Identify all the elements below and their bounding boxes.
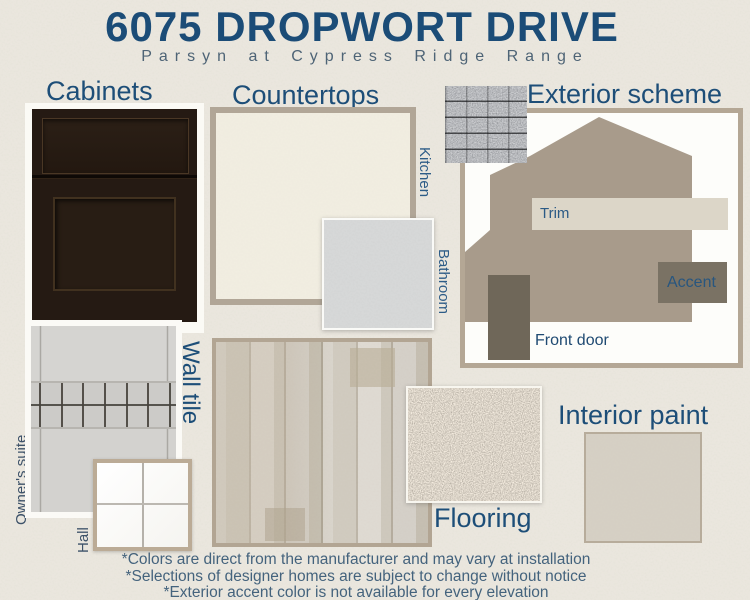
accent-label: Accent	[667, 274, 716, 292]
cabinet-drawer-front	[42, 118, 189, 174]
hall-tile-swatch	[93, 459, 192, 551]
flooring-panel	[212, 338, 432, 547]
design-board: 6075 DROPWORT DRIVE Parsyn at Cypress Ri…	[0, 0, 750, 600]
accent-swatch: Accent	[658, 262, 727, 303]
front-door-swatch	[488, 275, 530, 360]
bathroom-label: Bathroom	[435, 249, 452, 314]
flooring-heading: Flooring	[434, 503, 532, 534]
texture-overlay	[586, 434, 700, 541]
trim-band: Trim	[532, 198, 728, 230]
exterior-heading: Exterior scheme	[527, 79, 722, 110]
footnote-line: *Exterior accent color is not available …	[0, 585, 712, 600]
texture-overlay	[324, 220, 432, 328]
page-subtitle: Parsyn at Cypress Ridge Range	[0, 48, 730, 66]
footnote-line: *Colors are direct from the manufacturer…	[0, 552, 712, 569]
page-title: 6075 DROPWORT DRIVE	[0, 3, 724, 51]
kitchen-label: Kitchen	[416, 147, 433, 197]
footnotes: *Colors are direct from the manufacturer…	[0, 552, 712, 600]
tile-grout	[97, 503, 188, 505]
wood-plank-patch	[265, 508, 305, 541]
footnote-line: *Selections of designer homes are subjec…	[0, 569, 712, 586]
texture-overlay	[408, 388, 540, 501]
interior-paint-swatch	[584, 432, 702, 543]
shingle-rows	[445, 86, 527, 163]
wood-plank-patch	[350, 348, 395, 387]
bathroom-countertop-swatch	[322, 218, 434, 330]
carpet-swatch	[406, 386, 542, 503]
hall-label: Hall	[75, 527, 92, 553]
wood-plank-texture	[216, 342, 428, 543]
front-door-label: Front door	[535, 332, 609, 350]
cabinet-rail	[32, 175, 197, 179]
trim-label: Trim	[540, 205, 569, 222]
interior-paint-heading: Interior paint	[558, 400, 708, 431]
roof-shingle-swatch	[443, 84, 527, 163]
cabinet-swatch	[32, 109, 197, 322]
cabinet-door-panel	[53, 197, 176, 291]
